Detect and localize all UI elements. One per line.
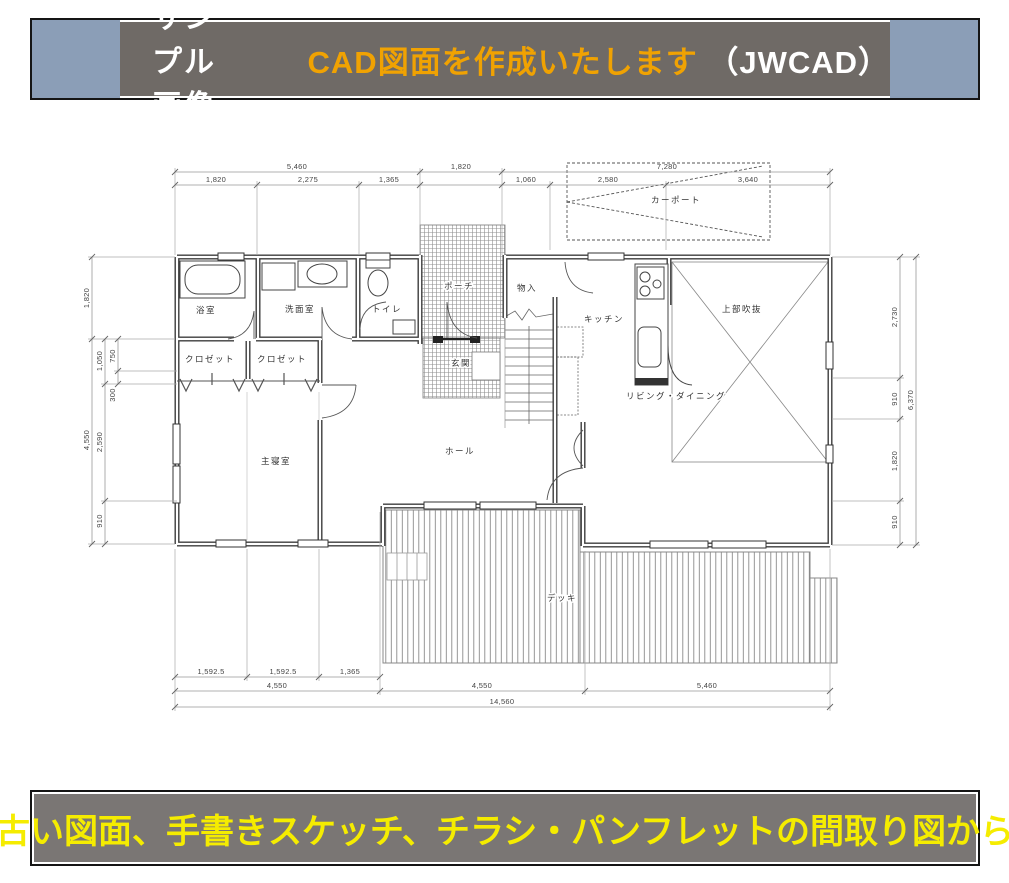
dim-label: 2,580 [598, 175, 618, 184]
page: 5,460 1,820 7,280 1,820 2,275 1,365 1,06… [0, 0, 1009, 883]
dim-label: 1,060 [516, 175, 536, 184]
dim-label: 1,365 [379, 175, 399, 184]
dim-label: 2,275 [298, 175, 318, 184]
room-label-storage: 物入 [517, 283, 537, 293]
floor-plan: 5,460 1,820 7,280 1,820 2,275 1,365 1,06… [0, 0, 1009, 883]
bottom-banner: 古い図面、手書きスケッチ、チラシ・パンフレットの間取り図から [30, 790, 980, 866]
dim-label: 910 [890, 392, 899, 405]
room-label-porch: ポーチ [444, 281, 474, 291]
top-banner: サンプル画像 CAD図面を作成いたします （JWCAD） [30, 18, 980, 100]
room-label-deck: デッキ [547, 593, 577, 603]
deck-area [383, 510, 837, 663]
dim-label: 2,730 [890, 307, 899, 327]
top-banner-body: サンプル画像 CAD図面を作成いたします （JWCAD） [120, 20, 890, 98]
dim-label: 3,640 [738, 175, 758, 184]
sink-bowl [307, 264, 337, 284]
room-label-hall: ホール [445, 446, 475, 456]
dim-label: 300 [108, 388, 117, 401]
dim-label: 2,590 [95, 432, 104, 452]
dim-label: 1,365 [340, 667, 360, 676]
dim-label: 1,820 [890, 451, 899, 471]
toilet-bowl [368, 270, 388, 296]
room-label-entry: 玄関 [451, 358, 471, 368]
toilet-cabinet [393, 320, 415, 334]
void-cross [672, 262, 828, 462]
room-label-kitchen: キッチン [584, 314, 624, 324]
room-label-living: リビング・ダイニング [626, 391, 726, 401]
washing-machine [262, 263, 295, 290]
room-label-void: 上部吹抜 [722, 304, 762, 314]
bottom-banner-text: 古い図面、手書きスケッチ、チラシ・パンフレットの間取り図から [0, 804, 1009, 853]
dim-label: 7,280 [657, 162, 677, 171]
top-banner-left-cap [32, 20, 120, 98]
banner-title: CAD図面を作成いたします （JWCAD） [308, 37, 890, 82]
top-banner-right-cap [890, 20, 978, 98]
dim-label: 4,550 [267, 681, 287, 690]
banner-title-main: CAD図面を作成いたします [308, 45, 698, 80]
counter-return [668, 345, 692, 385]
room-label-bath: 浴室 [196, 305, 216, 315]
bathtub [185, 265, 240, 294]
dim-label: 910 [890, 515, 899, 528]
dim-label: 1,050 [95, 351, 104, 371]
dim-label: 750 [108, 349, 117, 362]
dim-label: 1,592.5 [269, 667, 296, 676]
dim-label: 4,550 [472, 681, 492, 690]
porch-hatch [420, 225, 505, 398]
bathtub-surround [180, 261, 245, 298]
dim-label: 1,592.5 [197, 667, 224, 676]
room-label-wash: 洗面室 [285, 304, 315, 314]
kitchen-dashed-boxes [557, 327, 583, 415]
dim-label: 4,550 [82, 430, 91, 450]
dim-label-total-width: 14,560 [490, 697, 515, 706]
room-label-closet1: クロゼット [185, 354, 235, 364]
grid-lines [247, 392, 319, 540]
sample-label: サンプル画像 [152, 0, 240, 125]
dim-label: 5,460 [697, 681, 717, 690]
room-label-toilet: トイレ [372, 304, 402, 314]
dim-label-total-height: 6,370 [906, 390, 915, 410]
banner-title-suffix: （JWCAD） [707, 45, 890, 80]
room-label-carport: カーポート [651, 195, 701, 205]
toilet-tank [366, 260, 390, 268]
dim-label: 1,820 [451, 162, 471, 171]
room-label-bedroom: 主寝室 [261, 456, 291, 466]
dim-label: 1,820 [206, 175, 226, 184]
dim-label: 1,820 [82, 288, 91, 308]
vanity-counter [298, 261, 347, 287]
dim-label: 5,460 [287, 162, 307, 171]
room-label-closet2: クロゼット [257, 354, 307, 364]
dim-label: 910 [95, 514, 104, 527]
